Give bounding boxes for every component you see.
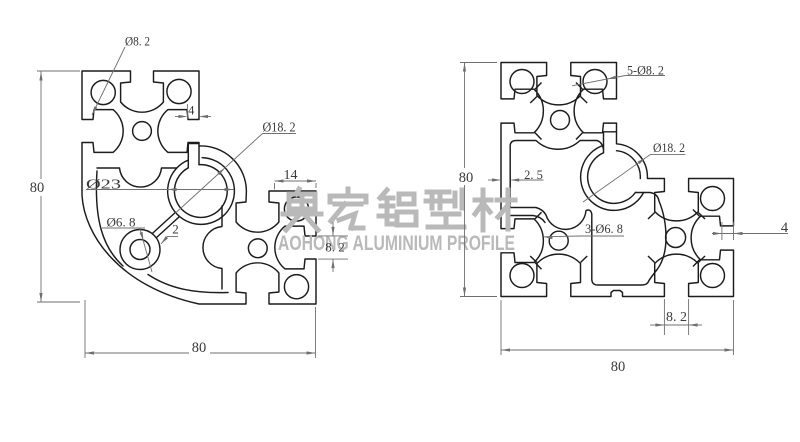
svg-text:80: 80	[192, 340, 207, 356]
svg-text:80: 80	[30, 180, 45, 196]
svg-text:8. 2: 8. 2	[666, 310, 687, 325]
svg-text:14: 14	[284, 168, 298, 183]
svg-text:80: 80	[611, 359, 626, 375]
svg-text:80: 80	[459, 170, 474, 186]
svg-text:Ø18. 2: Ø18. 2	[653, 141, 685, 155]
svg-text:8. 2: 8. 2	[325, 240, 345, 255]
svg-text:AOHONG ALUMINIUM PROFILE: AOHONG ALUMINIUM PROFILE	[278, 232, 515, 255]
svg-text:3-Ø6. 8: 3-Ø6. 8	[585, 222, 623, 236]
svg-text:4: 4	[781, 220, 789, 236]
svg-text:Ø6. 8: Ø6. 8	[107, 216, 136, 230]
svg-text:Ø8. 2: Ø8. 2	[125, 35, 150, 49]
svg-text:4: 4	[188, 104, 195, 118]
svg-text:Ø18. 2: Ø18. 2	[263, 120, 296, 135]
svg-text:2: 2	[172, 222, 179, 237]
